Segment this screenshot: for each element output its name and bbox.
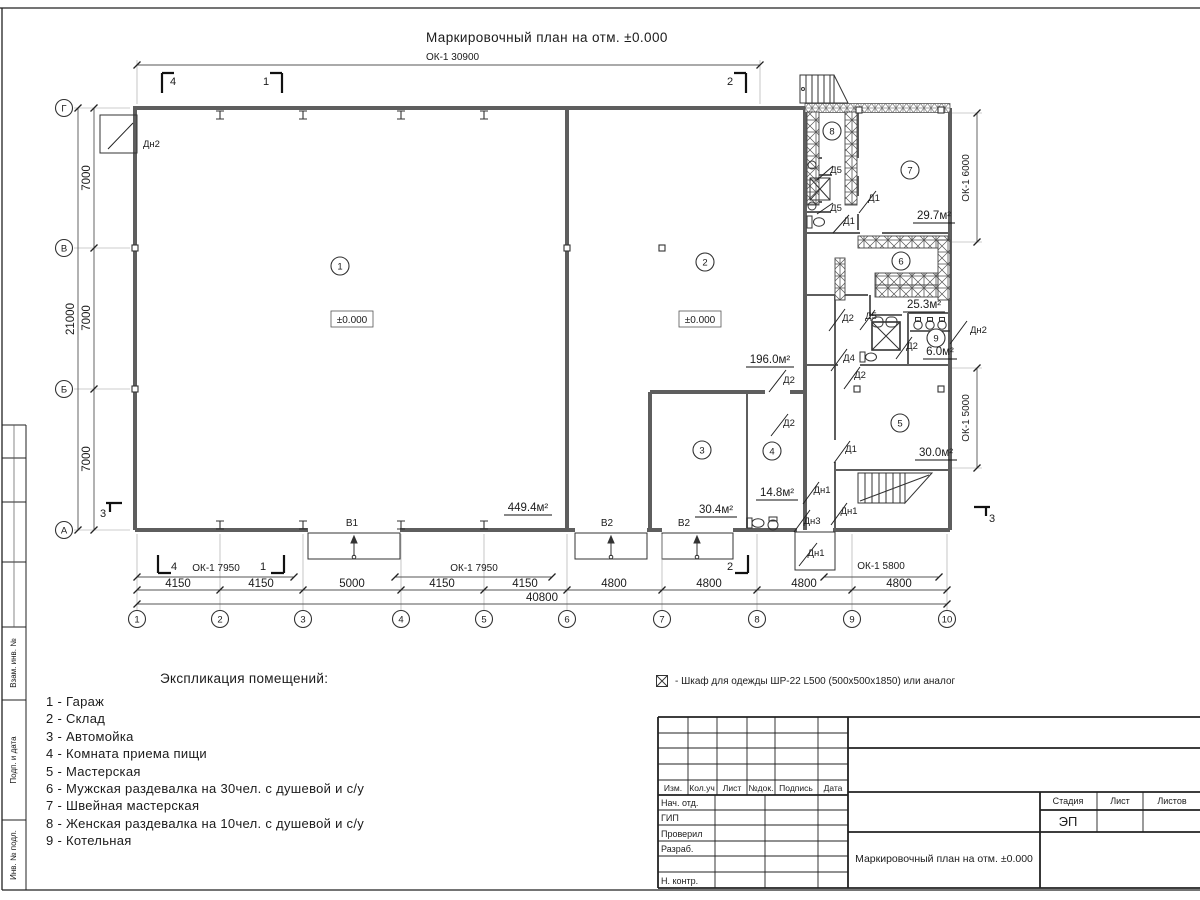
walls-outer <box>135 106 950 530</box>
dim: 4800 <box>696 578 722 590</box>
grid-row: Г <box>61 104 66 115</box>
room-area: 30.0м² <box>919 447 953 459</box>
locker-note-text: - Шкаф для одежды ШР-22 L500 (500x500x18… <box>675 676 955 687</box>
dim-total: 21000 <box>65 303 77 335</box>
room-area: 196.0м² <box>750 354 791 366</box>
elevation-mark: ±0.000 <box>685 315 716 326</box>
plan-title: Маркировочный план на отм. ±0.000 <box>426 30 668 45</box>
rev-header: Лист <box>723 783 742 793</box>
door-tag: Д5 <box>865 311 877 322</box>
section-mark: 2 <box>727 561 733 573</box>
door-tag: Дн1 <box>808 548 825 559</box>
rev-header: Изм. <box>664 783 682 793</box>
top-window-dim-label: ОК-1 30900 <box>426 52 480 63</box>
gate-tag: В1 <box>346 518 359 529</box>
legend-item: 8 - Женская раздевалка на 10чел. с душев… <box>46 815 476 832</box>
toilet-icon <box>807 216 825 228</box>
role-label: Проверил <box>661 829 702 839</box>
legend-item: 4 - Комната приема пищи <box>46 745 476 762</box>
titleblock-rev-headers: Изм. Кол.уч Лист №док. Подпись Дата <box>664 783 843 793</box>
boiler-icons <box>914 318 946 330</box>
dims-left: 7000 7000 7000 21000 <box>65 165 93 472</box>
dim: 4150 <box>248 578 274 590</box>
dim: 7000 <box>81 446 93 472</box>
gates <box>100 115 835 570</box>
frame-label-inv: Инв. № подл. <box>9 830 18 880</box>
elevation-mark: ±0.000 <box>337 315 368 326</box>
grid-col: 7 <box>659 615 664 626</box>
titleblock-roles: Нач. отд. ГИП Проверил Разраб. Н. контр. <box>661 798 702 886</box>
stage-value: ЭП <box>1059 814 1078 829</box>
room-area: 29.7м² <box>917 210 951 222</box>
legend-item: 3 - Автомойка <box>46 728 476 745</box>
locker-symbol-icon <box>656 675 668 687</box>
stairs-external <box>800 75 848 103</box>
legend-item: 7 - Швейная мастерская <box>46 797 476 814</box>
locker-note: - Шкаф для одежды ШР-22 L500 (500x500x18… <box>656 675 955 687</box>
room-number: 4 <box>769 446 774 457</box>
room-number: 6 <box>898 256 903 267</box>
dim-total: 40800 <box>526 592 558 604</box>
elevation-marks <box>331 311 721 327</box>
door-tag: Д2 <box>783 375 795 386</box>
room-area: 14.8м² <box>760 487 794 499</box>
dim: 4800 <box>791 578 817 590</box>
rev-header: Подпись <box>779 783 813 793</box>
door-leaves <box>108 123 967 566</box>
toilet-icon <box>860 352 877 362</box>
door-tag: Дн1 <box>841 506 858 517</box>
role-label: ГИП <box>661 813 679 823</box>
door-tag: Д4 <box>843 353 855 364</box>
room-number: 2 <box>702 257 707 268</box>
legend-item: 9 - Котельная <box>46 832 476 849</box>
room-area: 449.4м² <box>508 502 549 514</box>
grid-col: 3 <box>300 615 305 626</box>
dim: 4150 <box>512 578 538 590</box>
rev-header: Кол.уч <box>689 783 715 793</box>
room-number: 5 <box>897 418 902 429</box>
stage-header: Листов <box>1157 796 1186 806</box>
window-dim: ОК-1 5000 <box>961 394 972 442</box>
dim: 7000 <box>81 165 93 191</box>
legend-item: 2 - Склад <box>46 710 476 727</box>
room-legend: Экспликация помещений: 1 - Гараж 2 - Скл… <box>46 671 476 850</box>
grid-row: В <box>61 244 67 255</box>
section-mark: 3 <box>100 508 106 520</box>
window-dim: ОК-1 7950 <box>192 563 240 574</box>
section-mark: 2 <box>727 76 733 88</box>
dim: 4150 <box>165 578 191 590</box>
section-mark: 1 <box>260 561 266 573</box>
role-label: Н. контр. <box>661 876 698 886</box>
columns <box>132 107 944 529</box>
grid-col: 2 <box>217 615 222 626</box>
role-label: Нач. отд. <box>661 798 698 808</box>
drawing-sheet: Взам. инв. № Подп. и дата Инв. № подл. М… <box>0 0 1200 900</box>
frame-label-vzam: Взам. инв. № <box>9 638 18 688</box>
frame-side-labels: Взам. инв. № Подп. и дата Инв. № подл. <box>9 638 18 880</box>
room-number: 9 <box>933 333 938 344</box>
room-area: 25.3м² <box>907 299 941 311</box>
door-tag: Дн1 <box>814 485 831 496</box>
role-label: Разраб. <box>661 844 693 854</box>
grid-bubbles-bottom <box>129 611 956 628</box>
grid-row: А <box>61 526 68 537</box>
legend-title: Экспликация помещений: <box>46 671 476 686</box>
dim: 4800 <box>601 578 627 590</box>
section-mark: 1 <box>263 76 269 88</box>
stairs-internal <box>858 473 932 503</box>
dim: 7000 <box>81 305 93 331</box>
toilet-icon <box>747 518 764 528</box>
door-tag: Д1 <box>845 444 857 455</box>
rev-header: №док. <box>749 783 774 793</box>
door-tag: Д5 <box>830 165 842 176</box>
grid-col: 10 <box>942 615 953 626</box>
section-mark: 3 <box>989 513 995 525</box>
window-dim: ОК-1 5800 <box>857 561 905 572</box>
dim: 4150 <box>429 578 455 590</box>
section-mark: 4 <box>171 561 177 573</box>
door-tag: Д1 <box>868 193 880 204</box>
dim: 4800 <box>886 578 912 590</box>
dims-bottom: 4150 4150 5000 4150 4150 4800 4800 4800 … <box>165 578 912 604</box>
door-tag: Д2 <box>906 341 918 352</box>
grid-col: 9 <box>849 615 854 626</box>
grid-col: 1 <box>134 615 139 626</box>
window-dim: ОК-1 6000 <box>961 154 972 202</box>
room-area: 6.0м² <box>926 346 954 358</box>
room-area: 30.4м² <box>699 504 733 516</box>
gate-tag: В2 <box>678 518 691 529</box>
door-tag: Дн3 <box>804 516 821 527</box>
legend-item: 6 - Мужская раздевалка на 30чел. с душев… <box>46 780 476 797</box>
section-mark: 4 <box>170 76 176 88</box>
door-tag: Д5 <box>830 203 842 214</box>
room-number: 8 <box>829 126 834 137</box>
dimension-lines <box>78 65 977 604</box>
titleblock-stage: Стадия Лист Листов ЭП <box>1053 796 1187 829</box>
stage-header: Стадия <box>1053 796 1084 806</box>
grid-col: 6 <box>564 615 569 626</box>
door-tag: Д2 <box>842 313 854 324</box>
titleblock-doc-title: Маркировочный план на отм. ±0.000 <box>855 853 1033 865</box>
entry-box <box>100 115 137 153</box>
window-dim: ОК-1 7950 <box>450 563 498 574</box>
gate-tag: В2 <box>601 518 614 529</box>
room-number: 3 <box>699 445 704 456</box>
room-number: 1 <box>337 261 342 272</box>
legend-item: 5 - Мастерская <box>46 763 476 780</box>
door-tag: Дн2 <box>143 139 160 150</box>
hatched-top-wall <box>805 104 950 113</box>
door-tag: Дн2 <box>970 325 987 336</box>
grid-row: Б <box>61 385 67 396</box>
grid-col: 8 <box>754 615 759 626</box>
legend-item: 1 - Гараж <box>46 693 476 710</box>
door-tag: Д1 <box>843 216 855 227</box>
dim: 5000 <box>339 578 365 590</box>
room-number: 7 <box>907 165 912 176</box>
stage-header: Лист <box>1110 796 1130 806</box>
frame-label-podp: Подп. и дата <box>9 736 18 784</box>
grid-col: 5 <box>481 615 486 626</box>
rev-header: Дата <box>824 783 843 793</box>
door-tag: Д2 <box>854 370 866 381</box>
grid-col: 4 <box>398 615 403 626</box>
door-tag: Д2 <box>783 418 795 429</box>
grid-bubble-labels-bottom: 1 2 3 4 5 6 7 8 9 10 <box>134 615 952 626</box>
